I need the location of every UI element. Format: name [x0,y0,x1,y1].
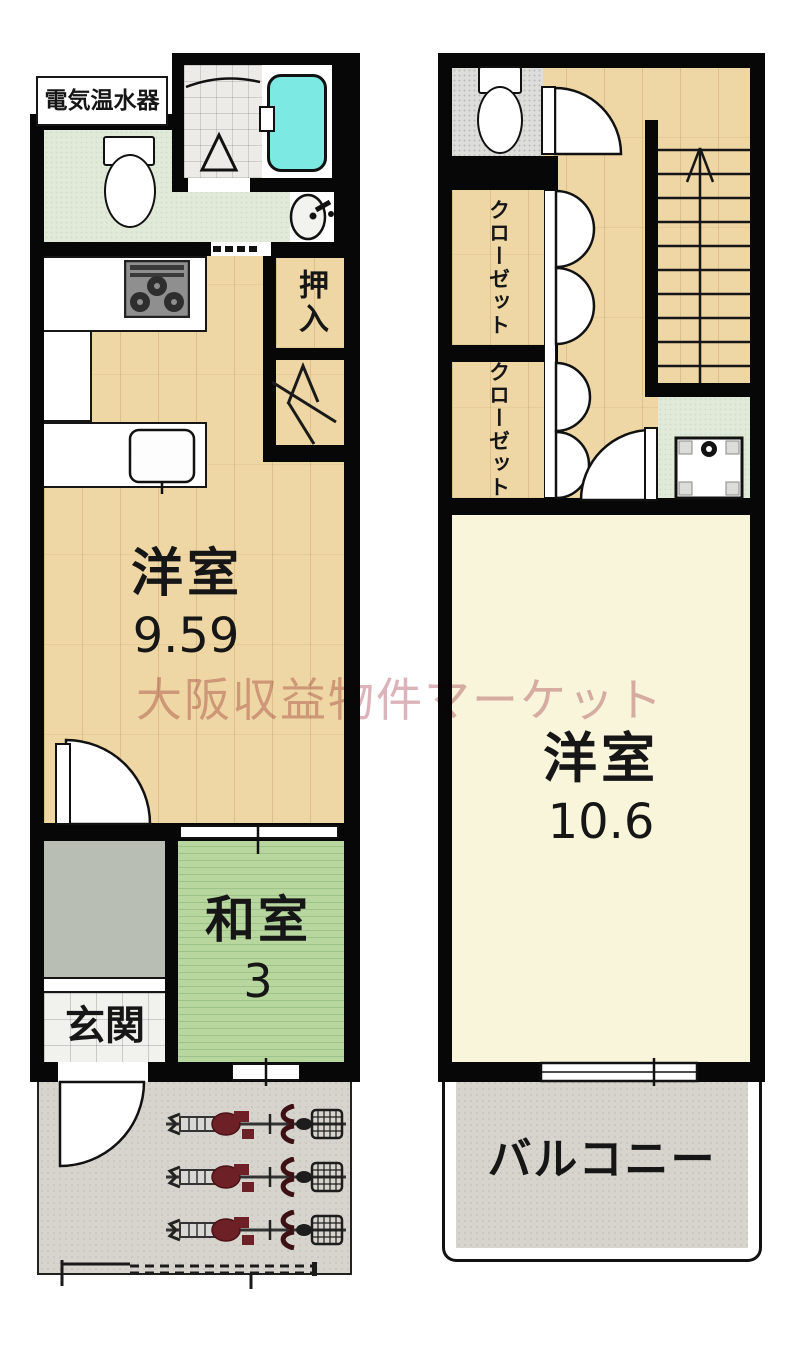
watermark-text: 大阪収益物件マーケット [136,664,664,730]
wall [30,114,44,1080]
wall [438,53,452,1082]
bathroom-door-gap [188,178,250,192]
tatami-room-name: 和室 [205,895,311,945]
laundry-door-swing-icon [573,422,661,506]
oshiire-interior: 押入 [276,258,344,348]
floor2-closet-lower: クローゼット [452,362,544,498]
entrance-label: 玄関 [65,1006,145,1046]
stairs-under-icon [272,358,346,450]
water-heater-label: 電気温水器 [45,90,160,113]
bathtub-icon [267,74,327,172]
wall [344,53,360,1082]
living-room-size: 9.59 [133,612,240,660]
balcony-label: バルコニー [487,1138,716,1182]
wall [750,53,765,1082]
tub-faucet-deck [259,106,275,132]
floor1-storage-box [44,841,165,977]
wall [165,841,178,1064]
wall [452,345,558,362]
hall-opening-dashes [211,242,271,256]
sliding-door-icon [180,822,340,854]
living-room-name: 洋室 [131,548,243,600]
door-swing-icon [50,733,155,828]
kitchen-counter-left [44,332,92,422]
washing-machine-icon [674,436,744,500]
toilet-door-swing-icon [538,78,626,162]
water-heater-box: 電気温水器 [36,76,168,126]
shower-symbols [184,65,262,178]
closet-lower-label: クローゼット [488,361,509,499]
bicycle-icon [166,1157,348,1197]
stair-divider-wall [645,120,658,397]
bicycle-icon [166,1210,348,1250]
washbasin-icon [286,192,338,242]
bedroom-size: 10.6 [548,798,655,846]
bedroom-name: 洋室 [543,732,659,786]
stove-icon [124,260,190,318]
entrance-door-swing-icon [55,1078,150,1173]
tatami-room-size: 3 [243,958,272,1004]
closet-upper-label: クローゼット [488,199,509,337]
stairs-up-icon [658,120,750,398]
toilet-bowl-icon [477,86,523,154]
bedroom-window-icon [540,1058,698,1086]
bicycle-icon [166,1104,348,1144]
oshiire-label: 押入 [295,269,325,337]
floor1-shoe-counter [44,977,165,993]
floor2-closet-upper: クローゼット [452,190,544,345]
site-gate-icon [48,1255,338,1295]
toilet-bowl-icon [104,154,156,228]
floor1-tatami-floor [178,841,344,1064]
floor-plan-canvas: 電気温水器 押入 洋室 [0,0,800,1346]
tatami-window-icon [232,1058,300,1086]
wall [645,383,750,397]
kitchen-sink-icon [128,428,196,496]
